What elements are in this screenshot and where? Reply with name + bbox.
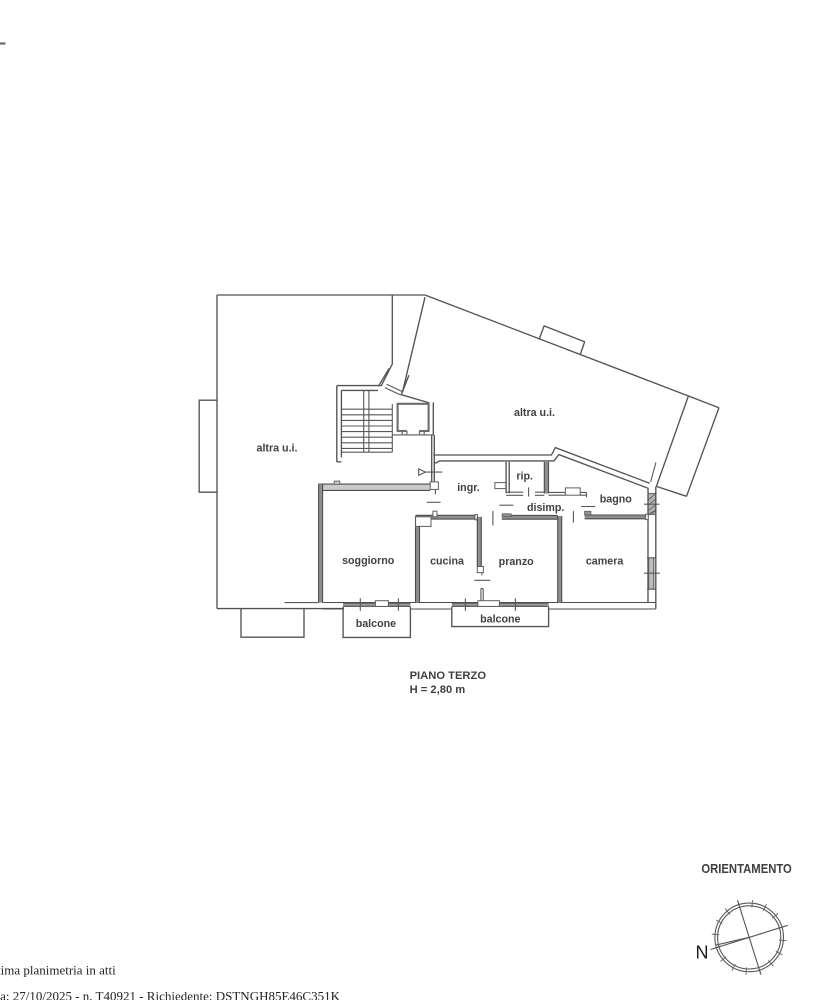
svg-text:altra u.i.: altra u.i. bbox=[257, 443, 298, 455]
svg-text:pranzo: pranzo bbox=[499, 556, 535, 568]
svg-text:cucina: cucina bbox=[430, 556, 465, 568]
svg-text:Data: 27/10/2025 - n. T40921 -: Data: 27/10/2025 - n. T40921 - Richieden… bbox=[0, 989, 341, 1000]
svg-text:ORIENTAMENTO: ORIENTAMENTO bbox=[701, 861, 792, 876]
svg-text:disimp.: disimp. bbox=[527, 502, 564, 514]
svg-text:rip.: rip. bbox=[516, 471, 533, 483]
svg-text:balcone: balcone bbox=[480, 614, 520, 626]
svg-text:camera: camera bbox=[586, 556, 624, 568]
svg-text:altra u.i.: altra u.i. bbox=[514, 407, 555, 419]
svg-text:balcone: balcone bbox=[356, 618, 396, 630]
svg-text:ingr.: ingr. bbox=[457, 482, 480, 494]
svg-text:soggiorno: soggiorno bbox=[342, 555, 395, 567]
svg-text:PIANO TERZO: PIANO TERZO bbox=[410, 670, 487, 682]
svg-text:N: N bbox=[696, 943, 709, 963]
svg-text:bagno: bagno bbox=[600, 494, 633, 506]
svg-text:H = 2,80 m: H = 2,80 m bbox=[410, 684, 466, 696]
svg-text:Ultima planimetria in atti: Ultima planimetria in atti bbox=[0, 963, 116, 978]
